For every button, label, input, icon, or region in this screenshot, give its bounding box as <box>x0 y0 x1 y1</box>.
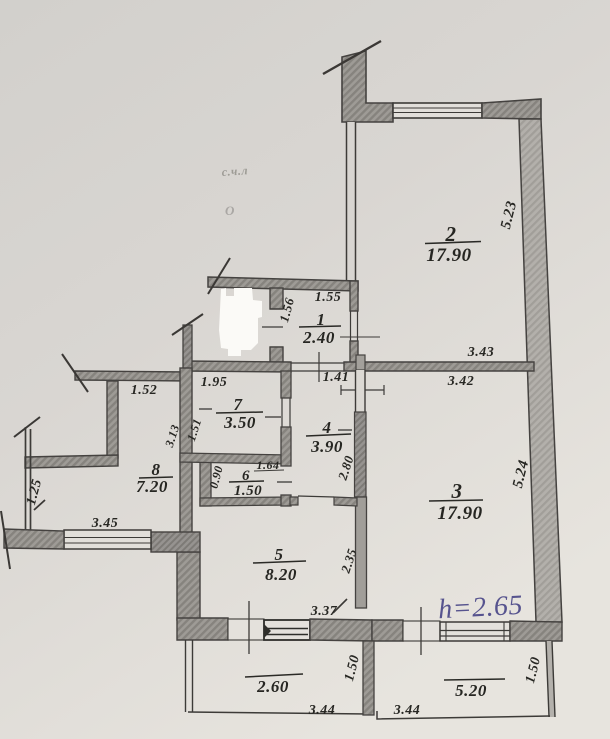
svg-text:3.45: 3.45 <box>91 516 119 531</box>
svg-text:h=2.65: h=2.65 <box>437 590 523 625</box>
svg-text:1.95: 1.95 <box>201 375 228 390</box>
svg-text:3.50: 3.50 <box>223 413 256 432</box>
svg-text:4: 4 <box>322 418 332 437</box>
svg-text:3.37: 3.37 <box>310 604 338 619</box>
svg-text:1.50: 1.50 <box>234 483 262 499</box>
svg-text:7.20: 7.20 <box>136 477 168 496</box>
svg-text:2.60: 2.60 <box>256 677 289 696</box>
svg-text:3.43: 3.43 <box>467 345 495 360</box>
svg-text:17.90: 17.90 <box>437 503 482 524</box>
svg-text:3: 3 <box>451 479 463 503</box>
svg-text:1.52: 1.52 <box>131 383 158 398</box>
svg-text:1.55: 1.55 <box>315 290 342 305</box>
svg-text:7: 7 <box>234 395 244 414</box>
svg-text:8.20: 8.20 <box>265 565 297 584</box>
svg-text:5.20: 5.20 <box>455 681 487 700</box>
svg-text:с.ч.л: с.ч.л <box>221 163 248 179</box>
svg-text:3.90: 3.90 <box>310 437 343 456</box>
svg-text:2.40: 2.40 <box>302 328 335 347</box>
svg-text:17.90: 17.90 <box>426 245 471 266</box>
svg-text:3.44: 3.44 <box>308 703 336 718</box>
svg-text:3.42: 3.42 <box>447 374 475 389</box>
svg-text:1.41: 1.41 <box>323 370 350 385</box>
svg-text:3.44: 3.44 <box>393 703 421 718</box>
svg-text:О: О <box>225 203 235 218</box>
